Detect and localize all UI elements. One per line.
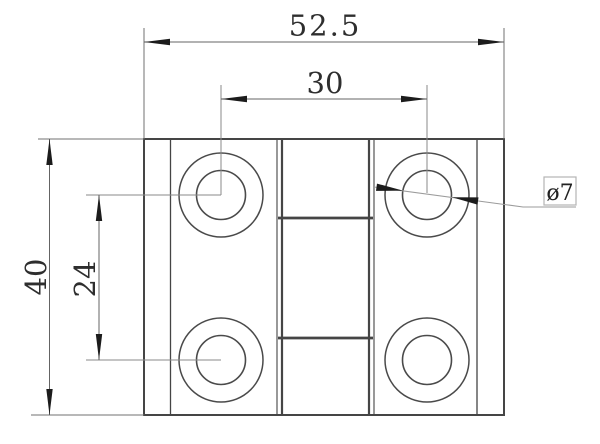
hinge-body-outline (144, 139, 504, 415)
dim-overall-height-label: 40 (19, 259, 53, 296)
arrowhead-left-icon (376, 184, 403, 191)
hinge-part (144, 139, 504, 415)
dim-hole-diameter-label: ø7 (546, 181, 573, 206)
hinge-dimension-drawing: 52.5 30 40 24 ø7 (0, 0, 600, 444)
arrowhead-down-icon (46, 389, 52, 415)
arrowhead-left-icon (144, 39, 170, 45)
hole-bottom-right-bore (403, 336, 452, 385)
arrowhead-right-icon (452, 197, 479, 204)
dim-hole-pitch-vertical-label: 24 (68, 261, 102, 298)
arrowhead-right-icon (401, 96, 427, 102)
arrowhead-up-icon (96, 195, 102, 221)
arrowhead-right-icon (478, 39, 504, 45)
dim-hole-pitch-horizontal-label: 30 (307, 66, 344, 100)
arrowhead-left-icon (221, 96, 247, 102)
arrowhead-up-icon (46, 139, 52, 165)
arrowhead-down-icon (96, 334, 102, 360)
drawing-canvas: 52.5 30 40 24 ø7 (0, 0, 600, 444)
hole-bottom-right (385, 318, 469, 402)
dim-hole-pitch-horizontal: 30 (221, 66, 427, 195)
dim-overall-width-label: 52.5 (289, 9, 362, 43)
hole-bottom-right-countersink (385, 318, 469, 402)
